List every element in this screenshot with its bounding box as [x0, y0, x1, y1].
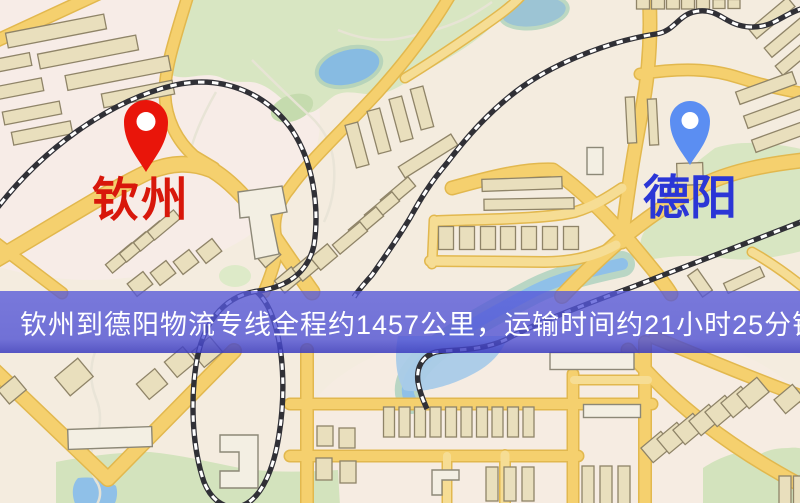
destination-city-label: 德阳 — [643, 173, 737, 225]
route-info-banner: 钦州到德阳物流专线全程约1457公里，运输时间约21小时25分钟. — [0, 291, 800, 353]
origin-city-label: 钦州 — [92, 175, 190, 227]
route-info-text: 钦州到德阳物流专线全程约1457公里，运输时间约21小时25分钟. — [20, 303, 800, 342]
map-screenshot: 钦州 德阳 钦州到德阳物流专线全程约1457公里，运输时间约21小时25分钟. — [0, 0, 800, 503]
map-canvas[interactable]: 钦州 德阳 — [0, 0, 800, 503]
